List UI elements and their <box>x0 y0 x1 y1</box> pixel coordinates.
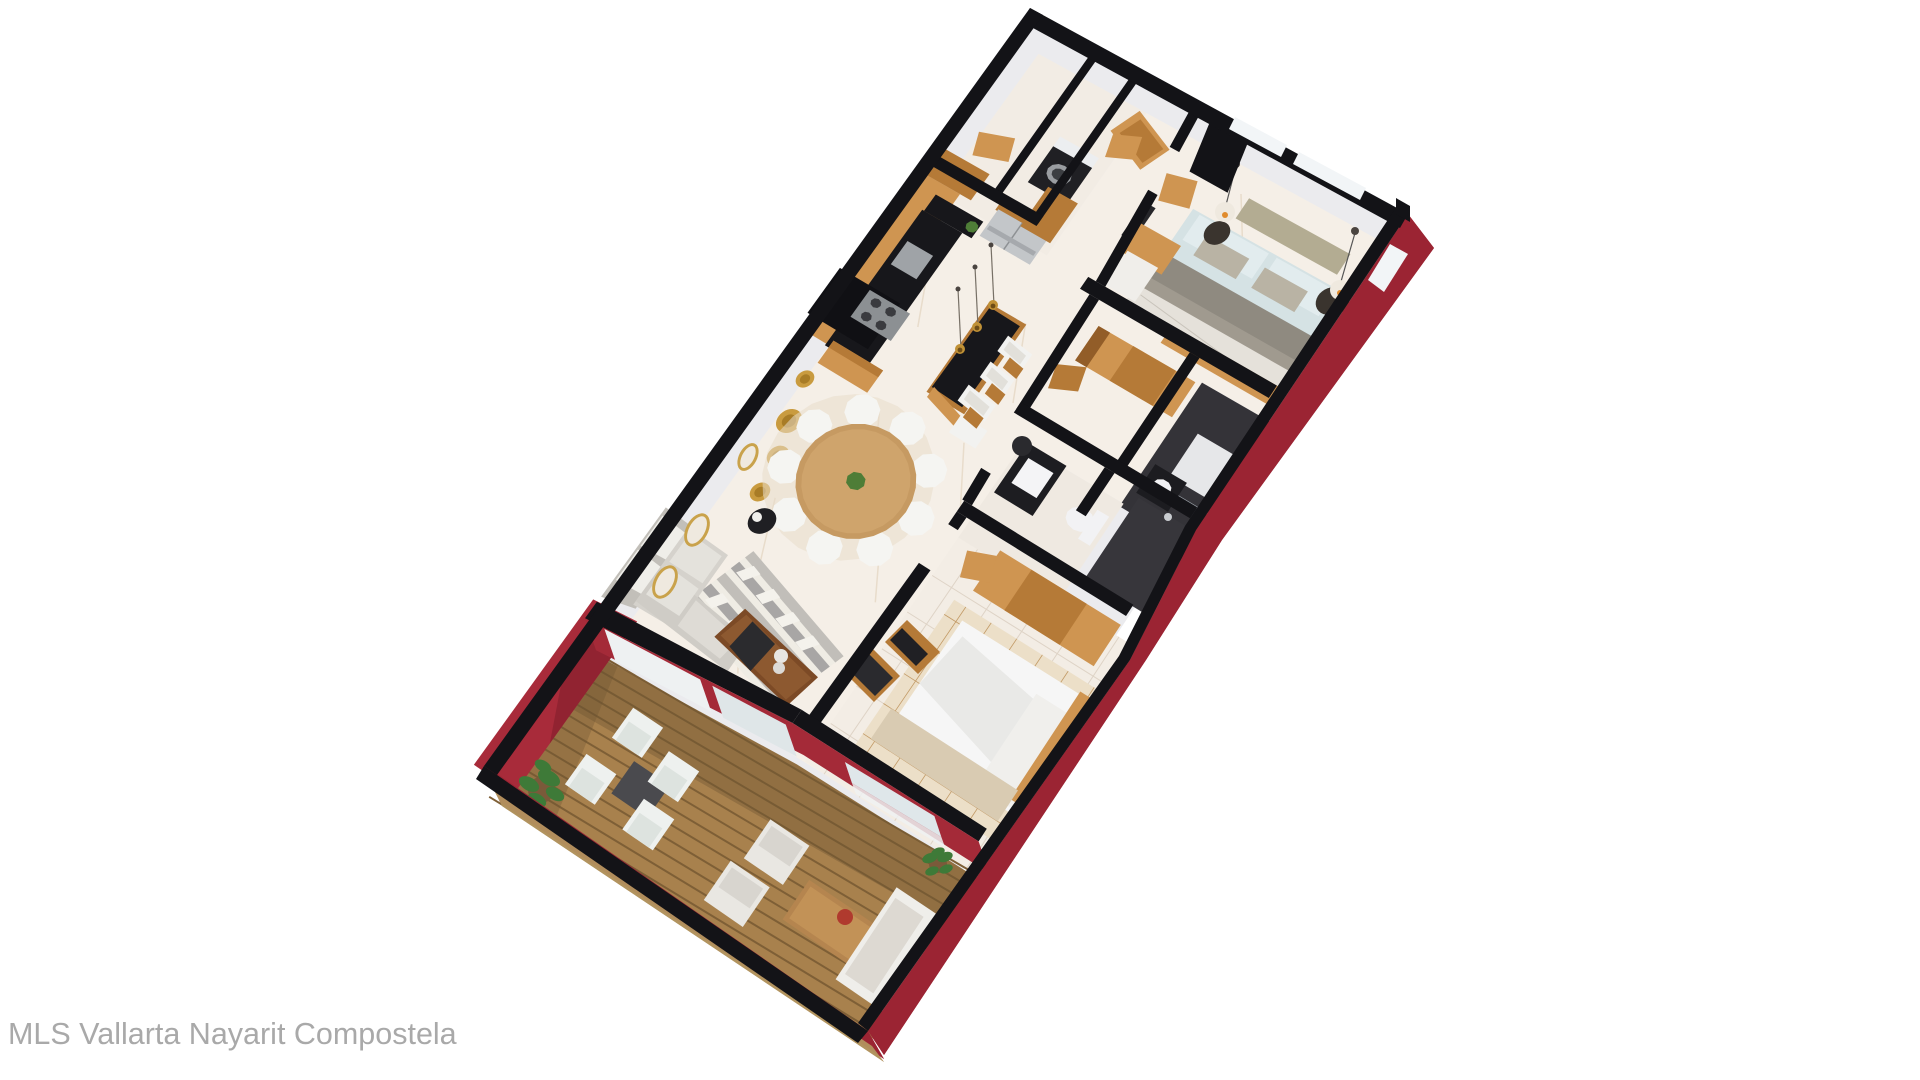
svg-text:MLS Vallarta Nayarit Compostel: MLS Vallarta Nayarit Compostela <box>8 1017 457 1051</box>
